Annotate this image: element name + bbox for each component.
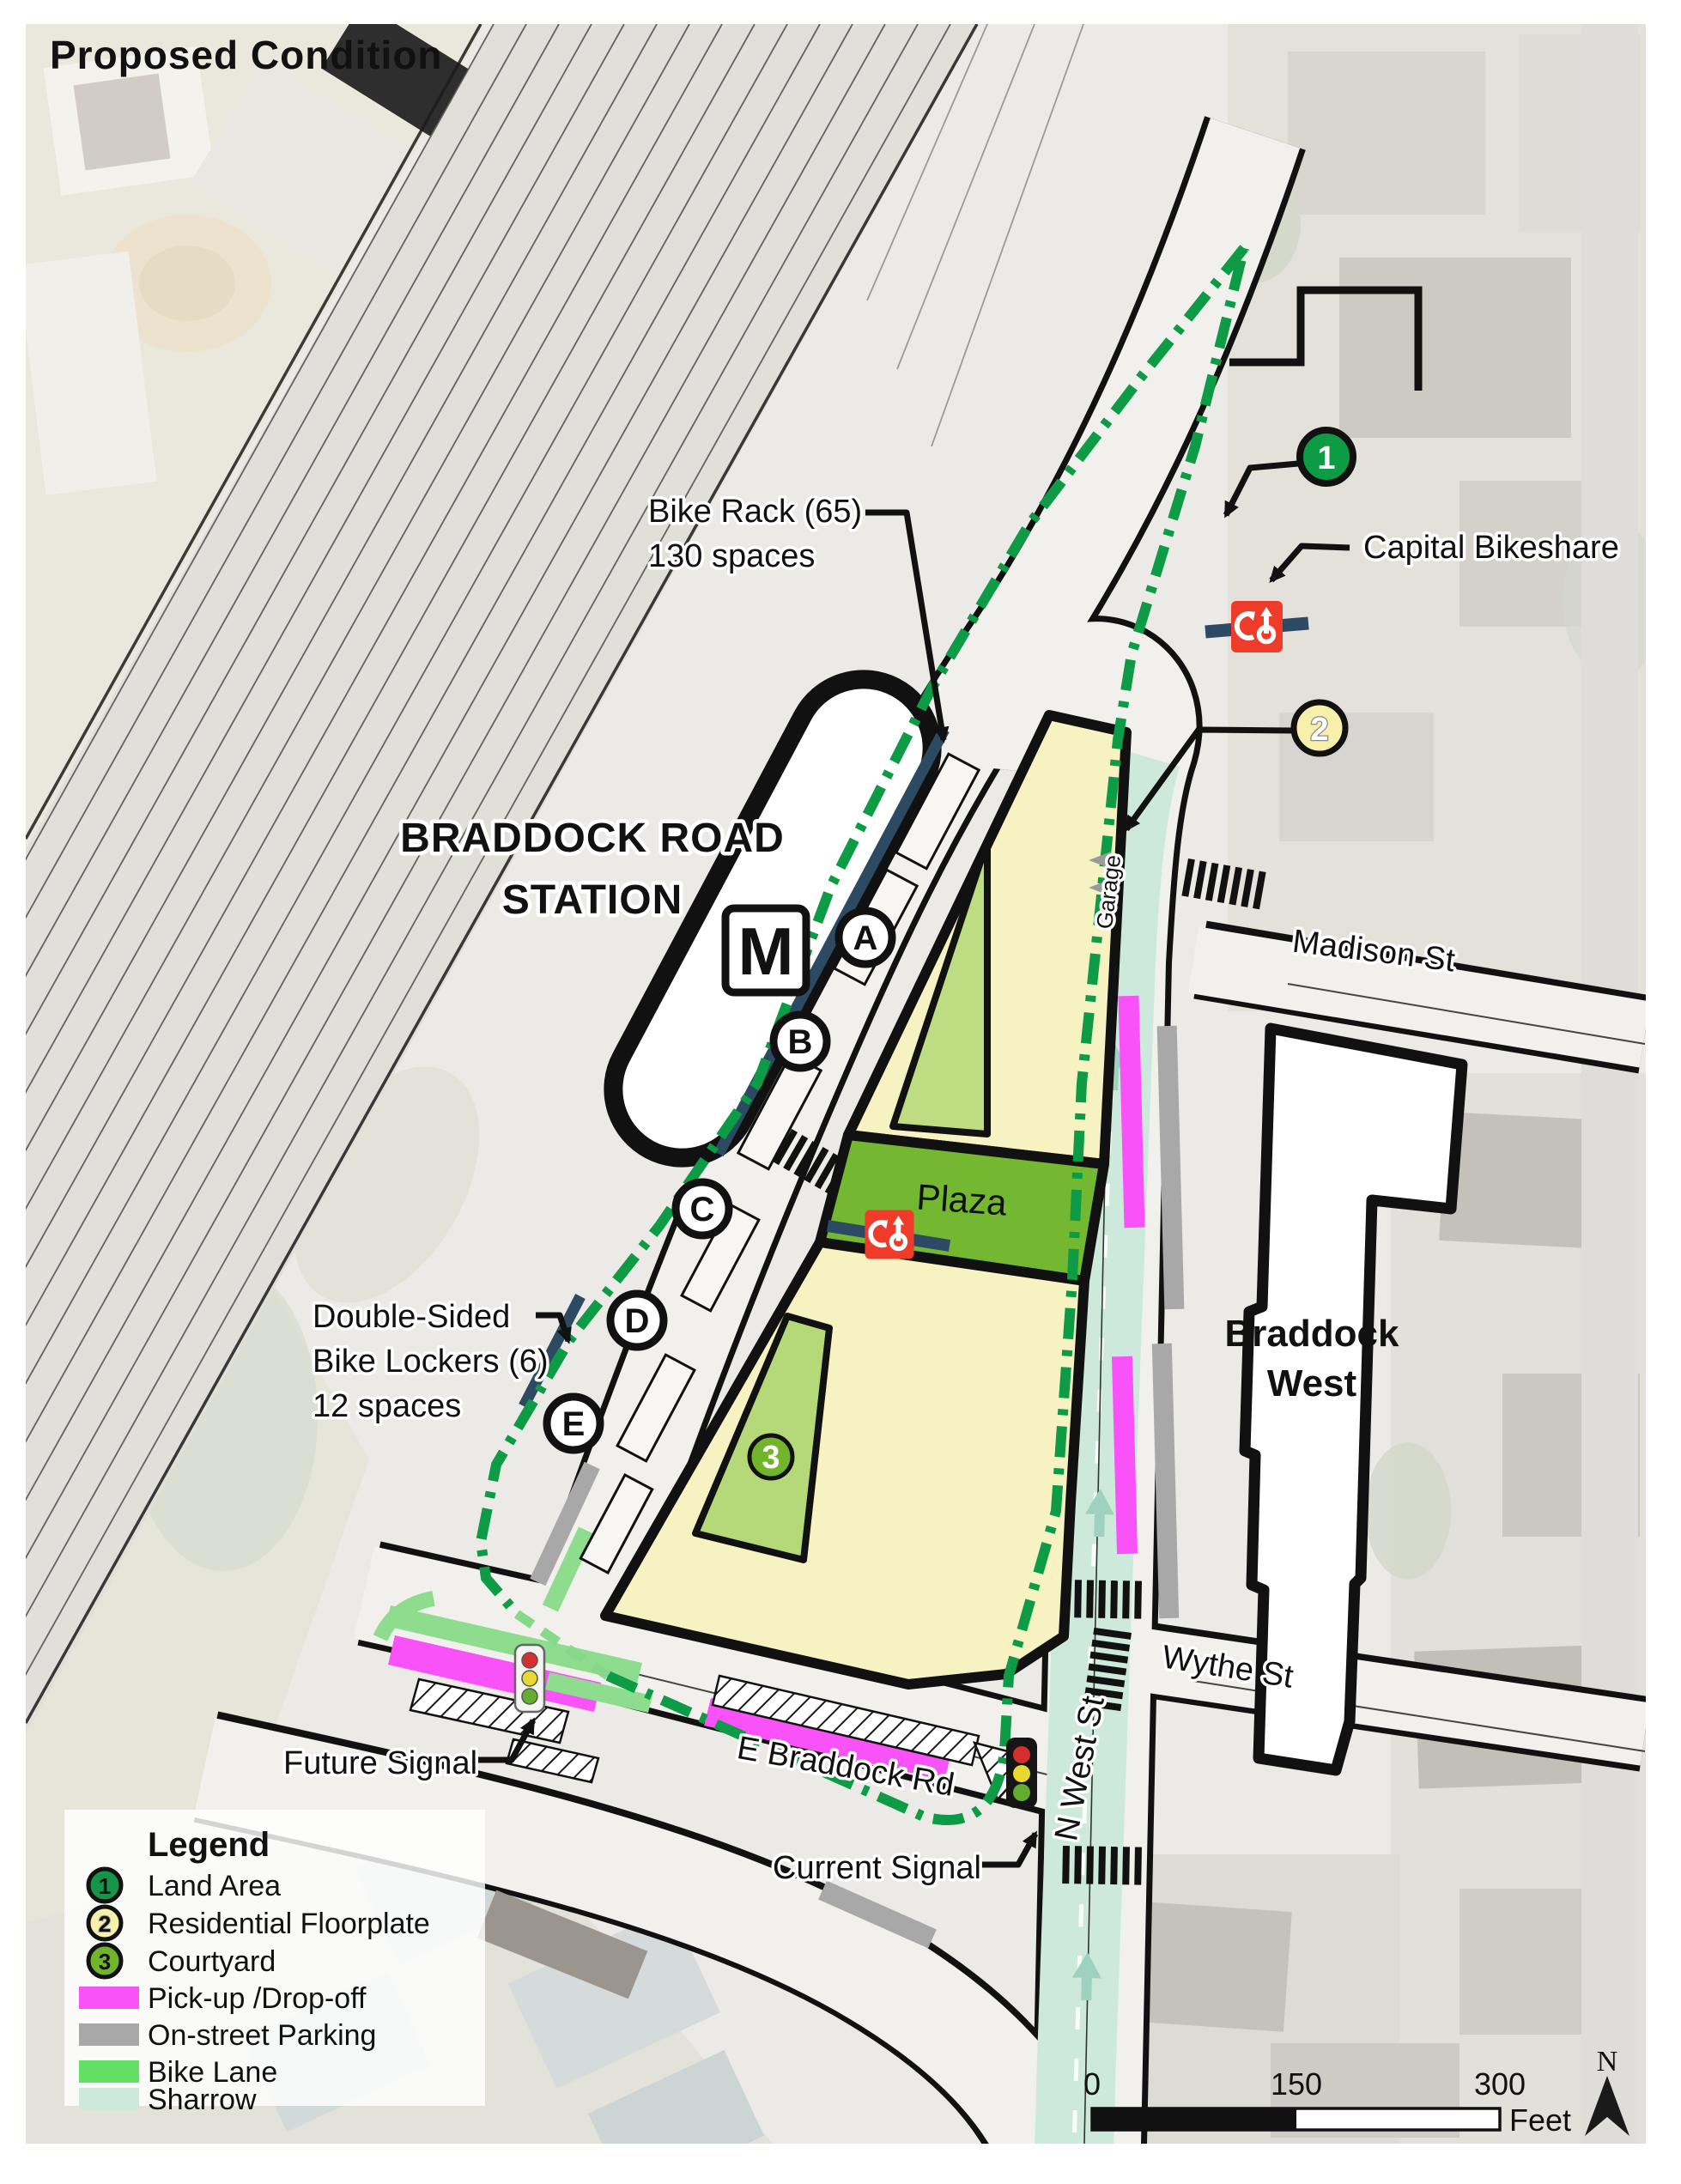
bike-lockers-label-line2: Bike Lockers (6): [313, 1344, 549, 1380]
station-name-line2: STATION: [502, 877, 683, 923]
legend-marker-1-number: 1: [99, 1873, 111, 1899]
bus-bay-e: E: [562, 1405, 586, 1443]
legend-label-land-area: Land Area: [148, 1870, 281, 1902]
current-signal-icon: [1006, 1738, 1037, 1808]
bus-bay-c: C: [690, 1191, 715, 1228]
capital-bikeshare-label: Capital Bikeshare: [1363, 530, 1619, 566]
north-label: N: [1597, 2046, 1618, 2078]
braddock-west-label-line1: Braddock: [1225, 1313, 1399, 1355]
metro-logo-m: M: [738, 913, 794, 989]
plaza-label: Plaza: [915, 1176, 1009, 1222]
marker-courtyard: 3: [749, 1435, 792, 1478]
bus-bay-a: A: [853, 919, 878, 957]
bike-rack-label-line2: 130 spaces: [648, 538, 815, 574]
bike-lockers-label-line1: Double-Sided: [313, 1299, 510, 1335]
bus-bay-d: D: [625, 1302, 650, 1340]
legend-label-sharrow: Sharrow: [148, 2084, 257, 2116]
station-name-line1: BRADDOCK ROAD: [400, 816, 785, 861]
bus-bay-b: B: [788, 1023, 813, 1061]
legend-swatch-bike-lane: [79, 2060, 139, 2083]
marker-2-number: 2: [1310, 712, 1328, 748]
scale-unit: Feet: [1509, 2102, 1571, 2138]
legend-swatch-sharrow: [79, 2088, 139, 2110]
scale-tick-300: 300: [1474, 2066, 1526, 2102]
current-signal-label: Current Signal: [773, 1850, 981, 1886]
legend-swatch-pickup: [79, 1987, 139, 2009]
scale-tick-0: 0: [1083, 2066, 1101, 2102]
legend-swatch-parking: [79, 2023, 139, 2046]
legend-label-residential: Residential Floorplate: [148, 1908, 430, 1940]
site-plan-map: 1 2 3 A B C D E BRADDOCK ROAD STATION: [0, 0, 1681, 2184]
legend-label-parking: On-street Parking: [148, 2019, 376, 2052]
legend-label-courtyard: Courtyard: [148, 1945, 276, 1978]
future-signal-icon: [515, 1645, 544, 1712]
legend-marker-3-number: 3: [99, 1949, 111, 1975]
legend-label-pickup: Pick-up /Drop-off: [148, 1982, 367, 2015]
marker-residential-floorplate: 2: [1294, 702, 1345, 754]
page-title: Proposed Condition: [50, 33, 443, 77]
braddock-west-label-line2: West: [1267, 1362, 1357, 1404]
legend-panel: Legend 1 Land Area 2 Residential Floorpl…: [64, 1810, 485, 2116]
marker-land-area: 1: [1300, 430, 1353, 483]
legend-marker-2-number: 2: [99, 1911, 111, 1937]
legend-title: Legend: [148, 1826, 270, 1864]
scale-tick-150: 150: [1271, 2066, 1322, 2102]
bike-rack-label-line1: Bike Rack (65): [648, 494, 862, 530]
future-signal-label: Future Signal: [283, 1745, 477, 1781]
bike-lockers-label-line3: 12 spaces: [313, 1388, 461, 1424]
marker-3-number: 3: [762, 1440, 780, 1476]
marker-1-number: 1: [1317, 440, 1335, 476]
